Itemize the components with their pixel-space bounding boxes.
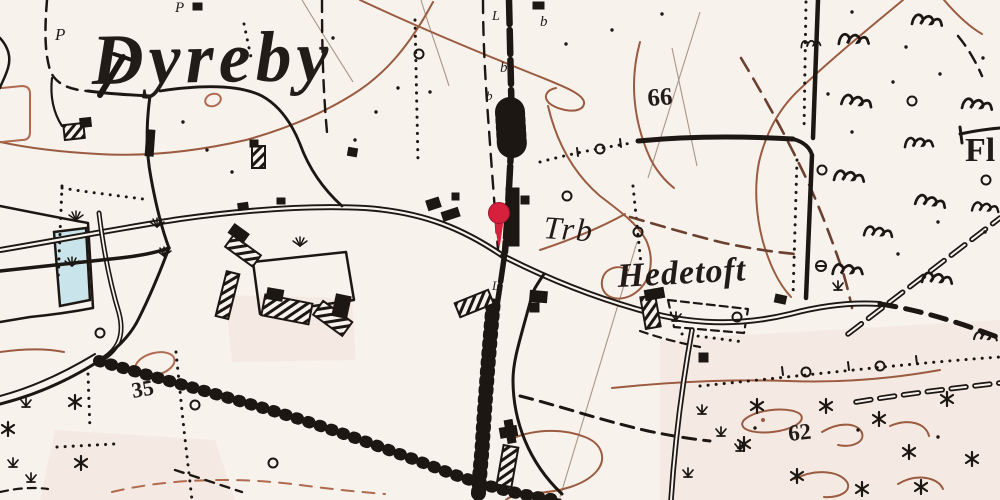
post-letter: P [54,25,65,44]
farm-label: Hedetoft [615,251,747,295]
elevation-label-62: 62 [787,419,812,446]
elevation-label-66: 66 [647,83,674,112]
elevation-label-35: 35 [130,374,156,402]
hatched-building [252,146,265,168]
station-label: Trb [543,209,596,248]
post-letter: P [174,0,184,16]
pin-head [489,203,510,224]
post-letter: b [540,14,548,30]
post-letter: L [491,278,499,293]
post-letter: L [491,9,500,24]
post-letter: b [486,88,493,103]
village-label: Dyreby [90,16,334,100]
post-letter: b [500,60,508,76]
edge-clipped-label: Fl [965,132,995,169]
map-canvas[interactable]: P P L b b b L Dyreby Trb Hedetoft Fl 66 … [0,0,1000,500]
